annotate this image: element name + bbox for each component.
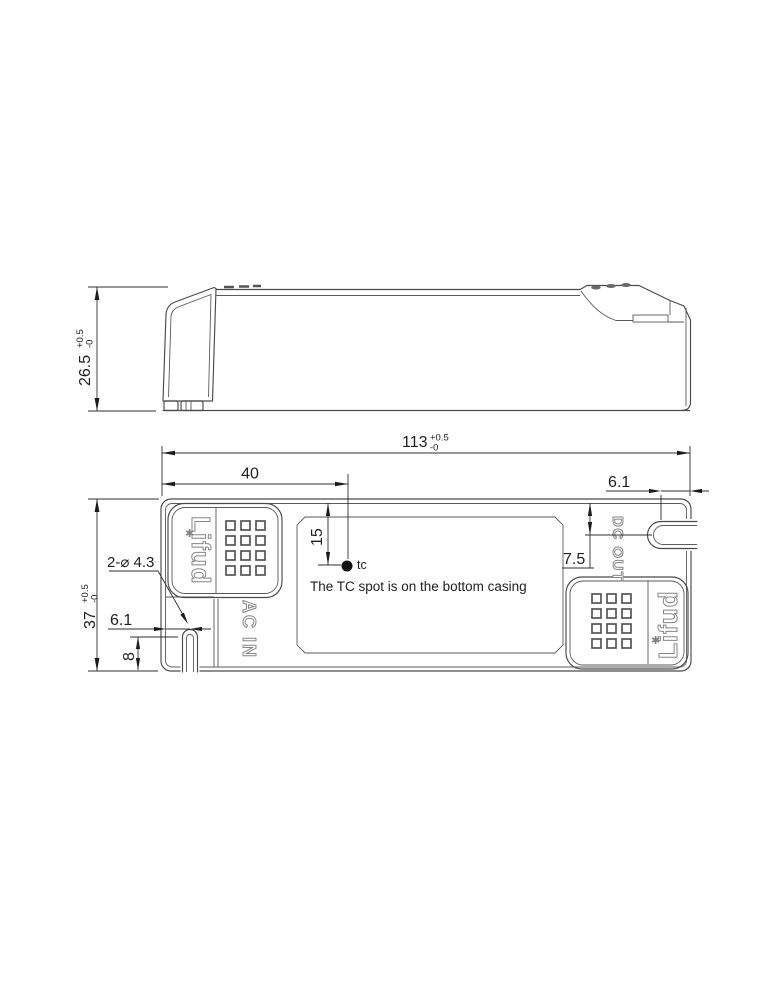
tc-spot-label: tc — [357, 558, 367, 572]
dim-left-slot-offset-value: 6.1 — [110, 612, 132, 629]
dim-right-slot-from-top: 7.5 — [562, 503, 652, 568]
dim-side-height-tolminus: -0 — [85, 340, 96, 348]
dim-side-height-value: 26.5 — [77, 355, 94, 386]
dim-left-slot-offset: 6.1 — [108, 612, 211, 631]
dim-tc-y: 15 — [309, 503, 341, 565]
tc-note: The TC spot is on the bottom casing — [310, 579, 527, 594]
side-vent-ovals — [591, 283, 631, 290]
tc-spot-dot — [342, 561, 353, 572]
side-vent-dashes — [224, 286, 261, 287]
side-right-housing-outer — [580, 286, 691, 411]
side-right-tab — [633, 315, 668, 322]
brand-logo-left: Lifud — [186, 516, 216, 585]
side-foot-ticks — [186, 401, 191, 410]
dim-tc-y-value: 15 — [309, 528, 326, 546]
dim-right-slot-from-top-value: 7.5 — [563, 551, 585, 568]
logo-flower-icon-right: ✱ — [651, 635, 660, 647]
dim-right-slot-offset: 6.1 — [606, 474, 709, 520]
ac-in-label: AC IN — [239, 600, 259, 659]
brand-logo-right: Lifud — [653, 590, 683, 659]
dc-connector: Lifud ✱ — [566, 577, 688, 669]
dim-left-slot-edge-value: 8 — [121, 652, 138, 661]
dim-side-height: 26.5 +0.5 -0 — [75, 287, 168, 411]
hole-callout-text: 2-⌀ 4.3 — [107, 554, 154, 571]
dim-right-slot-offset-value: 6.1 — [608, 474, 630, 491]
plan-view: Lifud ✱ AC IN Lifud ✱ — [80, 433, 709, 678]
side-view: 26.5 +0.5 -0 — [75, 283, 691, 411]
dim-length-tolminus: -0 — [430, 443, 438, 454]
dc-vent-grid — [592, 594, 631, 648]
side-right-step — [668, 301, 684, 323]
technical-drawing: 26.5 +0.5 -0 Lifud ✱ — [0, 0, 771, 1000]
side-foot-right — [181, 401, 203, 411]
side-right-housing-curve — [581, 291, 633, 321]
dim-width-tolminus: -0 — [90, 595, 101, 603]
side-left-block-outer — [163, 288, 216, 402]
ac-connector: Lifud ✱ — [168, 504, 282, 598]
side-left-block-inner — [169, 295, 212, 398]
logo-flower-icon-left: ✱ — [185, 528, 194, 540]
dc-out-label: DC OUT — [609, 516, 626, 583]
ac-vent-grid — [226, 521, 265, 575]
side-foot-left — [164, 401, 178, 411]
dim-left-slot-edge: 8 — [121, 637, 178, 670]
dim-width-value: 37 — [82, 611, 99, 629]
dim-width: 37 +0.5 -0 — [80, 499, 159, 671]
dim-tc-x-value: 40 — [241, 466, 259, 483]
dim-length-value: 113 — [402, 434, 428, 451]
drawing-sheet: 26.5 +0.5 -0 Lifud ✱ — [0, 0, 771, 1000]
